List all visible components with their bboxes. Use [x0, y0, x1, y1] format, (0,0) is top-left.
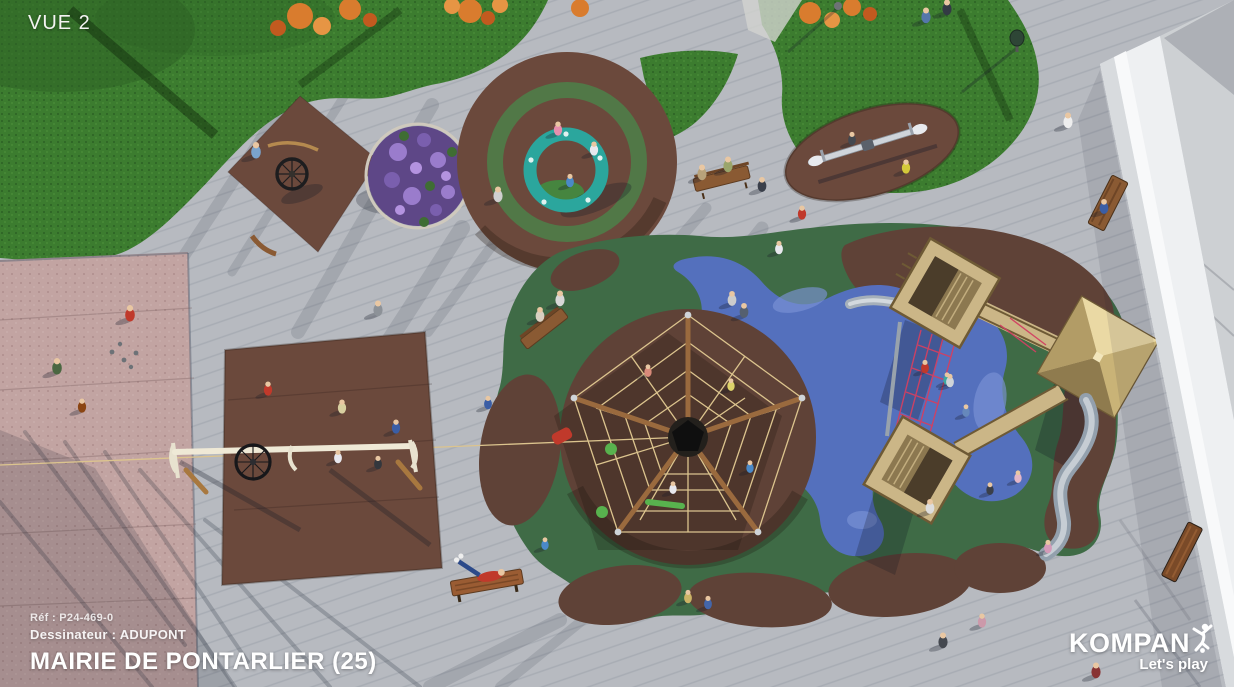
designer-credit: Dessinateur : ADUPONT — [30, 627, 377, 643]
title-block: Réf : P24-469-0 Dessinateur : ADUPONT MA… — [30, 612, 377, 677]
reference-number: Réf : P24-469-0 — [30, 612, 377, 626]
view-label: VUE 2 — [28, 12, 91, 35]
kompan-logo: KOMPAN Let's play — [1069, 623, 1214, 673]
caterpillar-toy — [648, 502, 682, 506]
render-scene — [0, 0, 1234, 687]
brand-name: KOMPAN — [1069, 631, 1190, 655]
brand-tagline: Let's play — [1069, 656, 1214, 673]
jumping-man-icon — [1192, 623, 1214, 653]
playground-aerial-render: VUE 2 Réf : P24-469-0 Dessinateur : ADUP… — [0, 0, 1234, 687]
project-title: MAIRIE DE PONTARLIER (25) — [30, 647, 377, 677]
